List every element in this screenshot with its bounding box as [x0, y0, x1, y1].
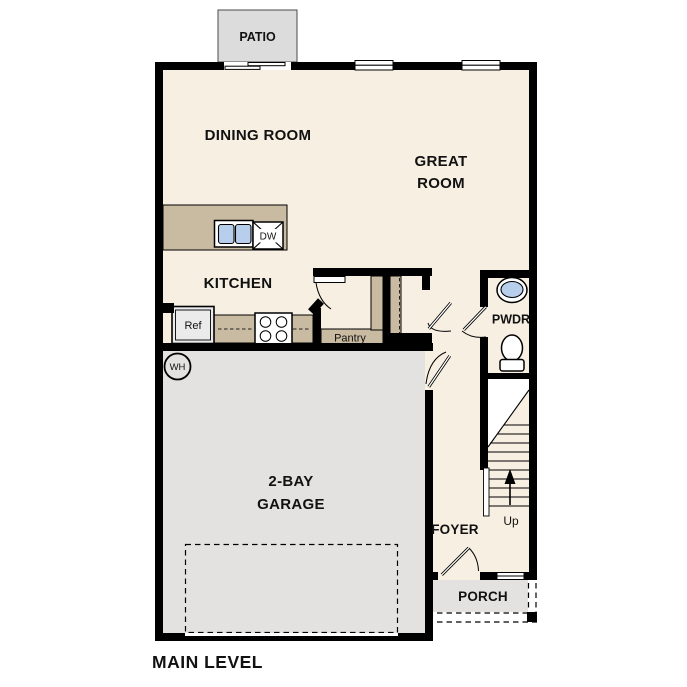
- garage-label-line2: GARAGE: [257, 496, 325, 513]
- wh-label: WH: [170, 362, 186, 373]
- stair-handrail: [484, 468, 490, 516]
- coat-closet: [390, 276, 401, 334]
- range-stove: [255, 313, 292, 345]
- dw-label: DW: [260, 232, 277, 243]
- ref-label: Ref: [184, 320, 202, 332]
- toilet: [500, 335, 524, 371]
- water-heater: WH: [165, 354, 191, 380]
- up-label: Up: [503, 514, 519, 528]
- great-room-label-line2: ROOM: [417, 175, 465, 192]
- porch-label: PORCH: [458, 589, 508, 604]
- main-level-title: MAIN LEVEL: [152, 652, 263, 672]
- garage-door: [185, 633, 398, 641]
- pantry-label: Pantry: [334, 333, 366, 345]
- patio-slider-door: [224, 62, 291, 70]
- window-dining: [355, 61, 393, 71]
- garage-label-line1: 2-BAY: [268, 473, 313, 490]
- dishwasher: DW: [253, 222, 283, 249]
- sink-basin-left: [219, 225, 235, 244]
- kitchen-island: DW: [163, 205, 287, 250]
- kitchen-label: KITCHEN: [204, 275, 273, 292]
- patio-label: PATIO: [239, 30, 276, 44]
- floor-plan: DW Ref: [0, 0, 687, 687]
- powder-sink: [497, 278, 527, 303]
- sink-basin-right: [236, 225, 252, 244]
- dining-room-label: DINING ROOM: [205, 127, 312, 144]
- foyer-label: FOYER: [431, 522, 479, 537]
- window-great-room: [462, 61, 500, 71]
- refrigerator: Ref: [172, 307, 214, 344]
- great-room-label-line1: GREAT: [415, 153, 468, 170]
- window-foyer-sidelite: [497, 573, 524, 580]
- pwdr-label: PWDR: [492, 313, 530, 327]
- garage-floor: [163, 351, 425, 633]
- porch-post: [527, 612, 537, 622]
